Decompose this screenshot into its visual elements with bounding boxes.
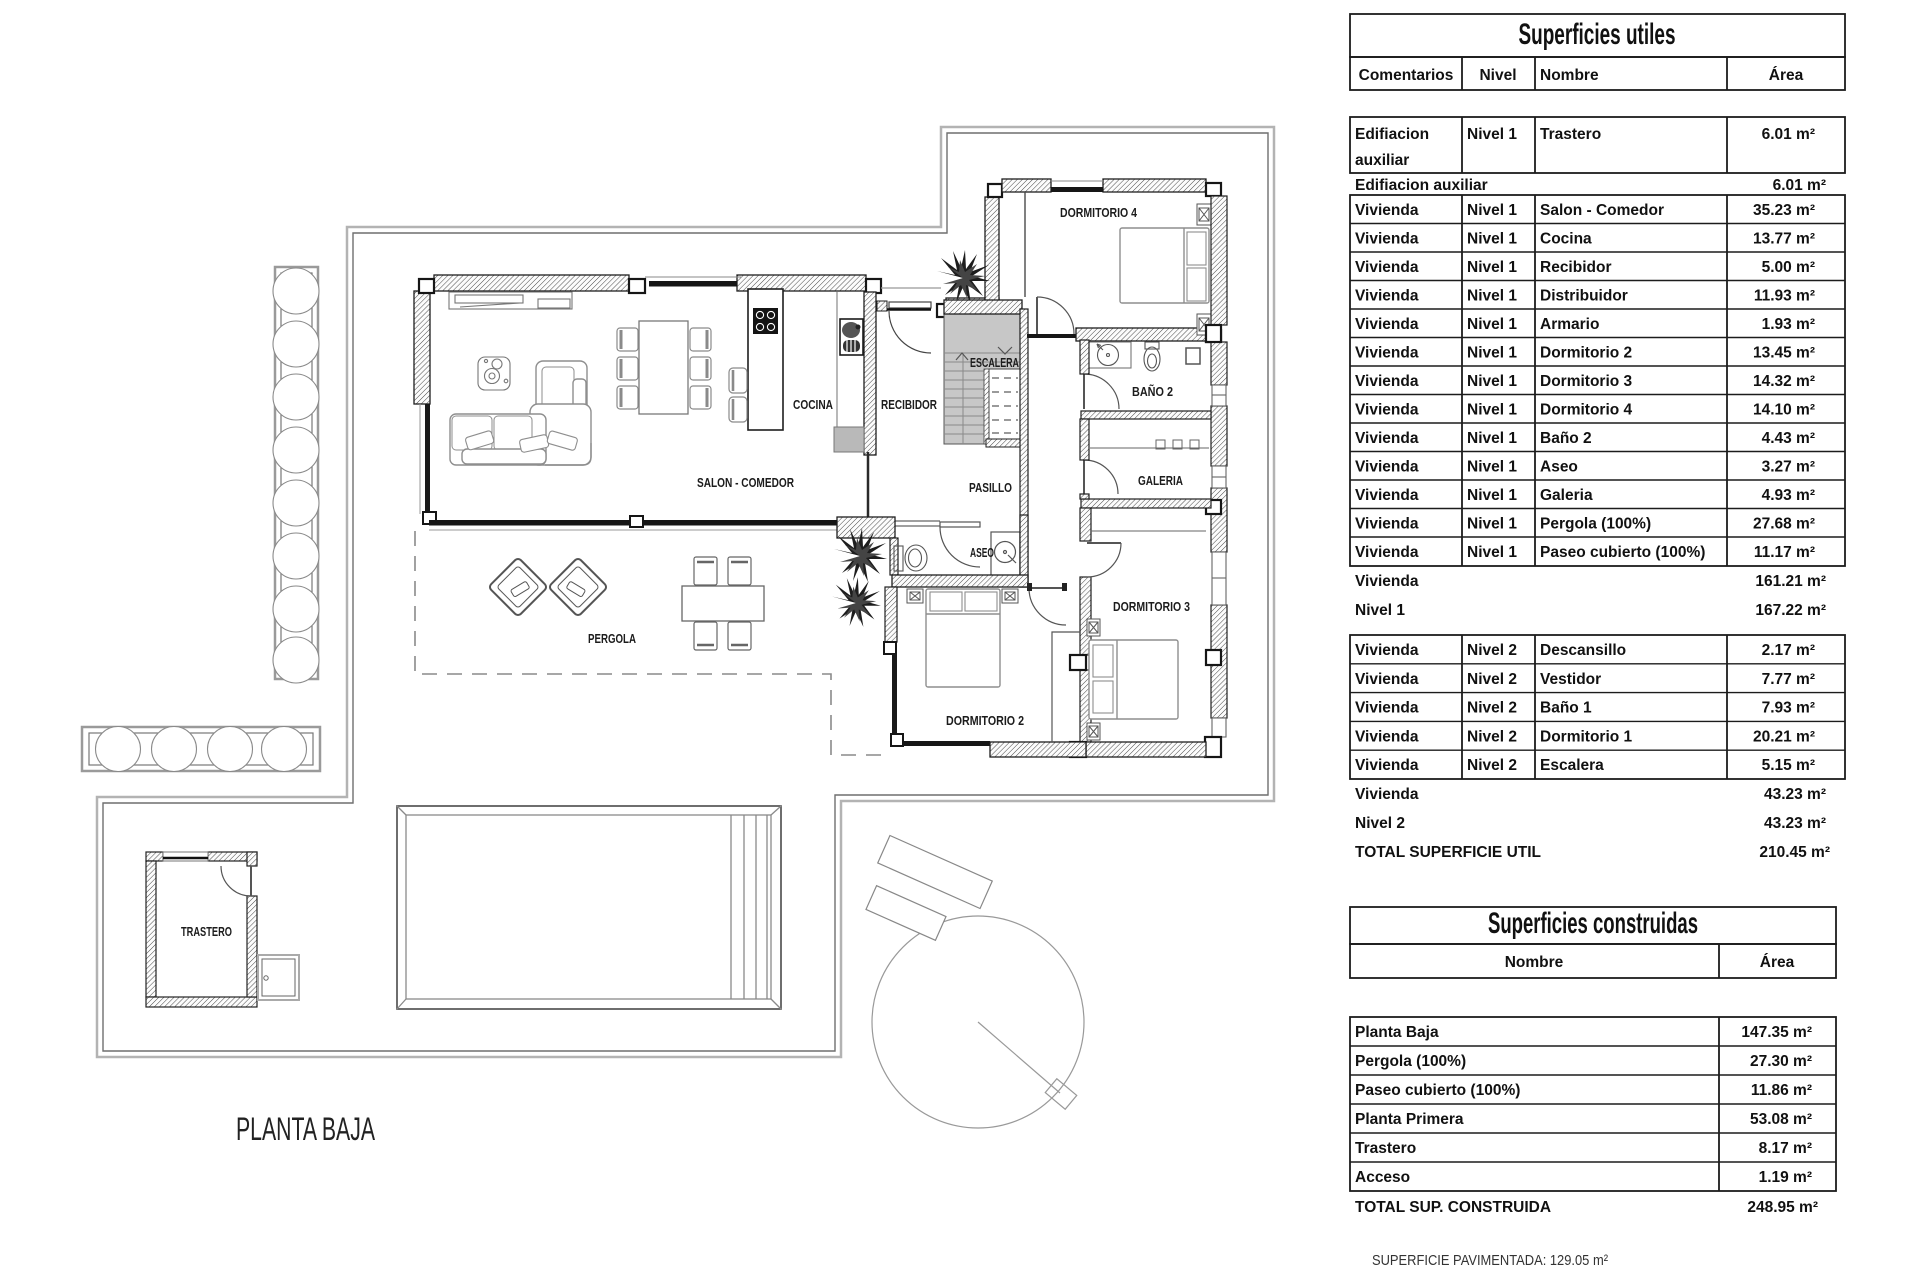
svg-text:ASEO: ASEO	[970, 545, 994, 560]
svg-text:Pergola (100%): Pergola (100%)	[1540, 516, 1651, 533]
svg-text:Nombre: Nombre	[1540, 67, 1599, 84]
svg-text:Vivienda: Vivienda	[1355, 259, 1419, 276]
svg-text:Salon - Comedor: Salon - Comedor	[1540, 202, 1664, 219]
svg-text:Nivel 2: Nivel 2	[1467, 642, 1517, 659]
svg-text:Vivienda: Vivienda	[1355, 728, 1419, 745]
svg-text:Vivienda: Vivienda	[1355, 544, 1419, 561]
svg-text:2.17 m²: 2.17 m²	[1762, 642, 1815, 659]
svg-text:35.23 m²: 35.23 m²	[1753, 202, 1815, 219]
svg-text:Nivel 1: Nivel 1	[1467, 316, 1517, 333]
svg-text:Dormitorio 1: Dormitorio 1	[1540, 728, 1633, 745]
svg-text:PLANTA BAJA: PLANTA BAJA	[236, 1111, 375, 1147]
svg-text:Edifiacion auxiliar: Edifiacion auxiliar	[1355, 177, 1488, 194]
svg-text:RECIBIDOR: RECIBIDOR	[881, 397, 937, 412]
svg-text:Nivel 1: Nivel 1	[1467, 345, 1517, 362]
svg-text:210.45 m²: 210.45 m²	[1759, 844, 1830, 861]
svg-text:BAÑO 2: BAÑO 2	[1132, 384, 1173, 399]
svg-text:13.77 m²: 13.77 m²	[1753, 231, 1815, 248]
svg-text:5.15 m²: 5.15 m²	[1762, 757, 1815, 774]
svg-text:248.95 m²: 248.95 m²	[1747, 1199, 1818, 1216]
svg-text:Vivienda: Vivienda	[1355, 231, 1419, 248]
svg-text:Nivel 2: Nivel 2	[1467, 700, 1517, 717]
svg-text:Nivel 1: Nivel 1	[1467, 373, 1517, 390]
svg-text:Nivel 2: Nivel 2	[1467, 757, 1517, 774]
svg-text:Nivel: Nivel	[1479, 67, 1516, 84]
svg-text:GALERIA: GALERIA	[1138, 473, 1183, 488]
svg-text:Nivel 1: Nivel 1	[1467, 544, 1517, 561]
svg-text:Nivel 1: Nivel 1	[1467, 231, 1517, 248]
svg-text:Vivienda: Vivienda	[1355, 459, 1419, 476]
svg-text:Vivienda: Vivienda	[1355, 757, 1419, 774]
svg-text:Planta Primera: Planta Primera	[1355, 1111, 1464, 1128]
svg-text:Vivienda: Vivienda	[1355, 642, 1419, 659]
svg-text:Baño 1: Baño 1	[1540, 700, 1592, 717]
svg-text:13.45 m²: 13.45 m²	[1753, 345, 1815, 362]
svg-text:Vivienda: Vivienda	[1355, 671, 1419, 688]
svg-text:Nivel 2: Nivel 2	[1467, 728, 1517, 745]
svg-text:Galeria: Galeria	[1540, 487, 1593, 504]
svg-text:4.43 m²: 4.43 m²	[1762, 430, 1815, 447]
svg-text:161.21 m²: 161.21 m²	[1755, 573, 1826, 590]
svg-text:Edifiacion: Edifiacion	[1355, 126, 1429, 143]
svg-text:Dormitorio 3: Dormitorio 3	[1540, 373, 1633, 390]
svg-text:147.35 m²: 147.35 m²	[1741, 1024, 1812, 1041]
svg-text:Dormitorio 2: Dormitorio 2	[1540, 345, 1632, 362]
svg-text:Vivienda: Vivienda	[1355, 373, 1419, 390]
svg-text:Nivel 1: Nivel 1	[1467, 459, 1517, 476]
svg-text:Nombre: Nombre	[1505, 954, 1564, 971]
svg-text:Pergola (100%): Pergola (100%)	[1355, 1053, 1466, 1070]
svg-text:Comentarios: Comentarios	[1359, 67, 1454, 84]
svg-text:auxiliar: auxiliar	[1355, 152, 1409, 169]
svg-text:Vivienda: Vivienda	[1355, 516, 1419, 533]
svg-text:7.93 m²: 7.93 m²	[1762, 700, 1815, 717]
svg-text:Vivienda: Vivienda	[1355, 573, 1419, 590]
svg-text:Nivel 1: Nivel 1	[1467, 202, 1517, 219]
svg-text:5.00 m²: 5.00 m²	[1762, 259, 1815, 276]
svg-text:Paseo cubierto (100%): Paseo cubierto (100%)	[1355, 1082, 1520, 1099]
svg-text:1.93 m²: 1.93 m²	[1762, 316, 1815, 333]
svg-text:27.68 m²: 27.68 m²	[1753, 516, 1815, 533]
svg-text:Vivienda: Vivienda	[1355, 786, 1419, 803]
svg-text:Nivel 1: Nivel 1	[1467, 430, 1517, 447]
svg-text:PERGOLA: PERGOLA	[588, 631, 636, 646]
svg-text:Nivel 1: Nivel 1	[1467, 516, 1517, 533]
svg-text:Nivel 1: Nivel 1	[1467, 487, 1517, 504]
svg-text:Nivel 2: Nivel 2	[1355, 815, 1405, 832]
svg-text:Escalera: Escalera	[1540, 757, 1604, 774]
svg-text:Nivel 1: Nivel 1	[1355, 602, 1405, 619]
svg-text:Planta Baja: Planta Baja	[1355, 1024, 1439, 1041]
svg-text:DORMITORIO 2: DORMITORIO 2	[946, 713, 1024, 728]
svg-text:27.30 m²: 27.30 m²	[1750, 1053, 1812, 1070]
svg-text:Distribuidor: Distribuidor	[1540, 288, 1628, 305]
svg-text:SALON - COMEDOR: SALON - COMEDOR	[697, 475, 794, 490]
svg-text:Paseo cubierto (100%): Paseo cubierto (100%)	[1540, 544, 1705, 561]
svg-text:11.86 m²: 11.86 m²	[1751, 1082, 1812, 1099]
svg-text:Vivienda: Vivienda	[1355, 288, 1419, 305]
svg-text:DORMITORIO 3: DORMITORIO 3	[1113, 599, 1190, 614]
svg-text:Área: Área	[1760, 954, 1795, 971]
svg-text:Baño 2: Baño 2	[1540, 430, 1592, 447]
svg-text:6.01 m²: 6.01 m²	[1773, 177, 1826, 194]
svg-text:Descansillo: Descansillo	[1540, 642, 1626, 659]
svg-text:Superficies utiles: Superficies utiles	[1519, 18, 1676, 51]
svg-text:4.93 m²: 4.93 m²	[1762, 487, 1815, 504]
svg-text:Vivienda: Vivienda	[1355, 345, 1419, 362]
svg-text:7.77 m²: 7.77 m²	[1762, 671, 1815, 688]
svg-text:Nivel 2: Nivel 2	[1467, 671, 1517, 688]
svg-text:Nivel 1: Nivel 1	[1467, 126, 1517, 143]
svg-text:TOTAL SUP. CONSTRUIDA: TOTAL SUP. CONSTRUIDA	[1355, 1199, 1551, 1216]
svg-text:Dormitorio 4: Dormitorio 4	[1540, 402, 1633, 419]
svg-text:14.10 m²: 14.10 m²	[1753, 402, 1815, 419]
svg-text:TRASTERO: TRASTERO	[181, 924, 232, 939]
svg-text:SUPERFICIE PAVIMENTADA: 129.05: SUPERFICIE PAVIMENTADA: 129.05 m²	[1372, 1252, 1608, 1269]
svg-text:Trastero: Trastero	[1540, 126, 1601, 143]
svg-text:14.32 m²: 14.32 m²	[1753, 373, 1815, 390]
svg-text:1.19 m²: 1.19 m²	[1759, 1169, 1812, 1186]
svg-text:6.01 m²: 6.01 m²	[1762, 126, 1815, 143]
svg-text:COCINA: COCINA	[793, 397, 833, 412]
svg-text:Superficies construidas: Superficies construidas	[1488, 907, 1698, 940]
svg-text:Vivienda: Vivienda	[1355, 430, 1419, 447]
svg-text:Trastero: Trastero	[1355, 1140, 1416, 1157]
svg-text:TOTAL SUPERFICIE UTIL: TOTAL SUPERFICIE UTIL	[1355, 844, 1541, 861]
svg-text:Vivienda: Vivienda	[1355, 402, 1419, 419]
svg-text:Recibidor: Recibidor	[1540, 259, 1611, 276]
svg-text:Nivel 1: Nivel 1	[1467, 259, 1517, 276]
svg-text:20.21 m²: 20.21 m²	[1753, 728, 1815, 745]
svg-text:Nivel 1: Nivel 1	[1467, 288, 1517, 305]
svg-text:ESCALERA: ESCALERA	[970, 355, 1019, 370]
svg-text:DORMITORIO 4: DORMITORIO 4	[1060, 205, 1138, 220]
svg-text:43.23 m²: 43.23 m²	[1764, 786, 1826, 803]
svg-text:Acceso: Acceso	[1355, 1169, 1410, 1186]
svg-text:167.22 m²: 167.22 m²	[1755, 602, 1826, 619]
svg-text:43.23 m²: 43.23 m²	[1764, 815, 1826, 832]
svg-text:3.27 m²: 3.27 m²	[1762, 459, 1815, 476]
svg-text:Vivienda: Vivienda	[1355, 316, 1419, 333]
svg-text:Armario: Armario	[1540, 316, 1599, 333]
svg-text:Vestidor: Vestidor	[1540, 671, 1601, 688]
svg-text:11.17 m²: 11.17 m²	[1754, 544, 1815, 561]
svg-text:Vivienda: Vivienda	[1355, 202, 1419, 219]
svg-text:8.17 m²: 8.17 m²	[1759, 1140, 1812, 1157]
svg-text:11.93 m²: 11.93 m²	[1754, 288, 1815, 305]
svg-text:Aseo: Aseo	[1540, 459, 1578, 476]
svg-text:Vivienda: Vivienda	[1355, 487, 1419, 504]
svg-text:53.08 m²: 53.08 m²	[1750, 1111, 1812, 1128]
svg-text:PASILLO: PASILLO	[969, 480, 1012, 495]
svg-text:Nivel 1: Nivel 1	[1467, 402, 1517, 419]
svg-text:Vivienda: Vivienda	[1355, 700, 1419, 717]
svg-text:Área: Área	[1769, 67, 1804, 84]
svg-text:Cocina: Cocina	[1540, 231, 1592, 248]
